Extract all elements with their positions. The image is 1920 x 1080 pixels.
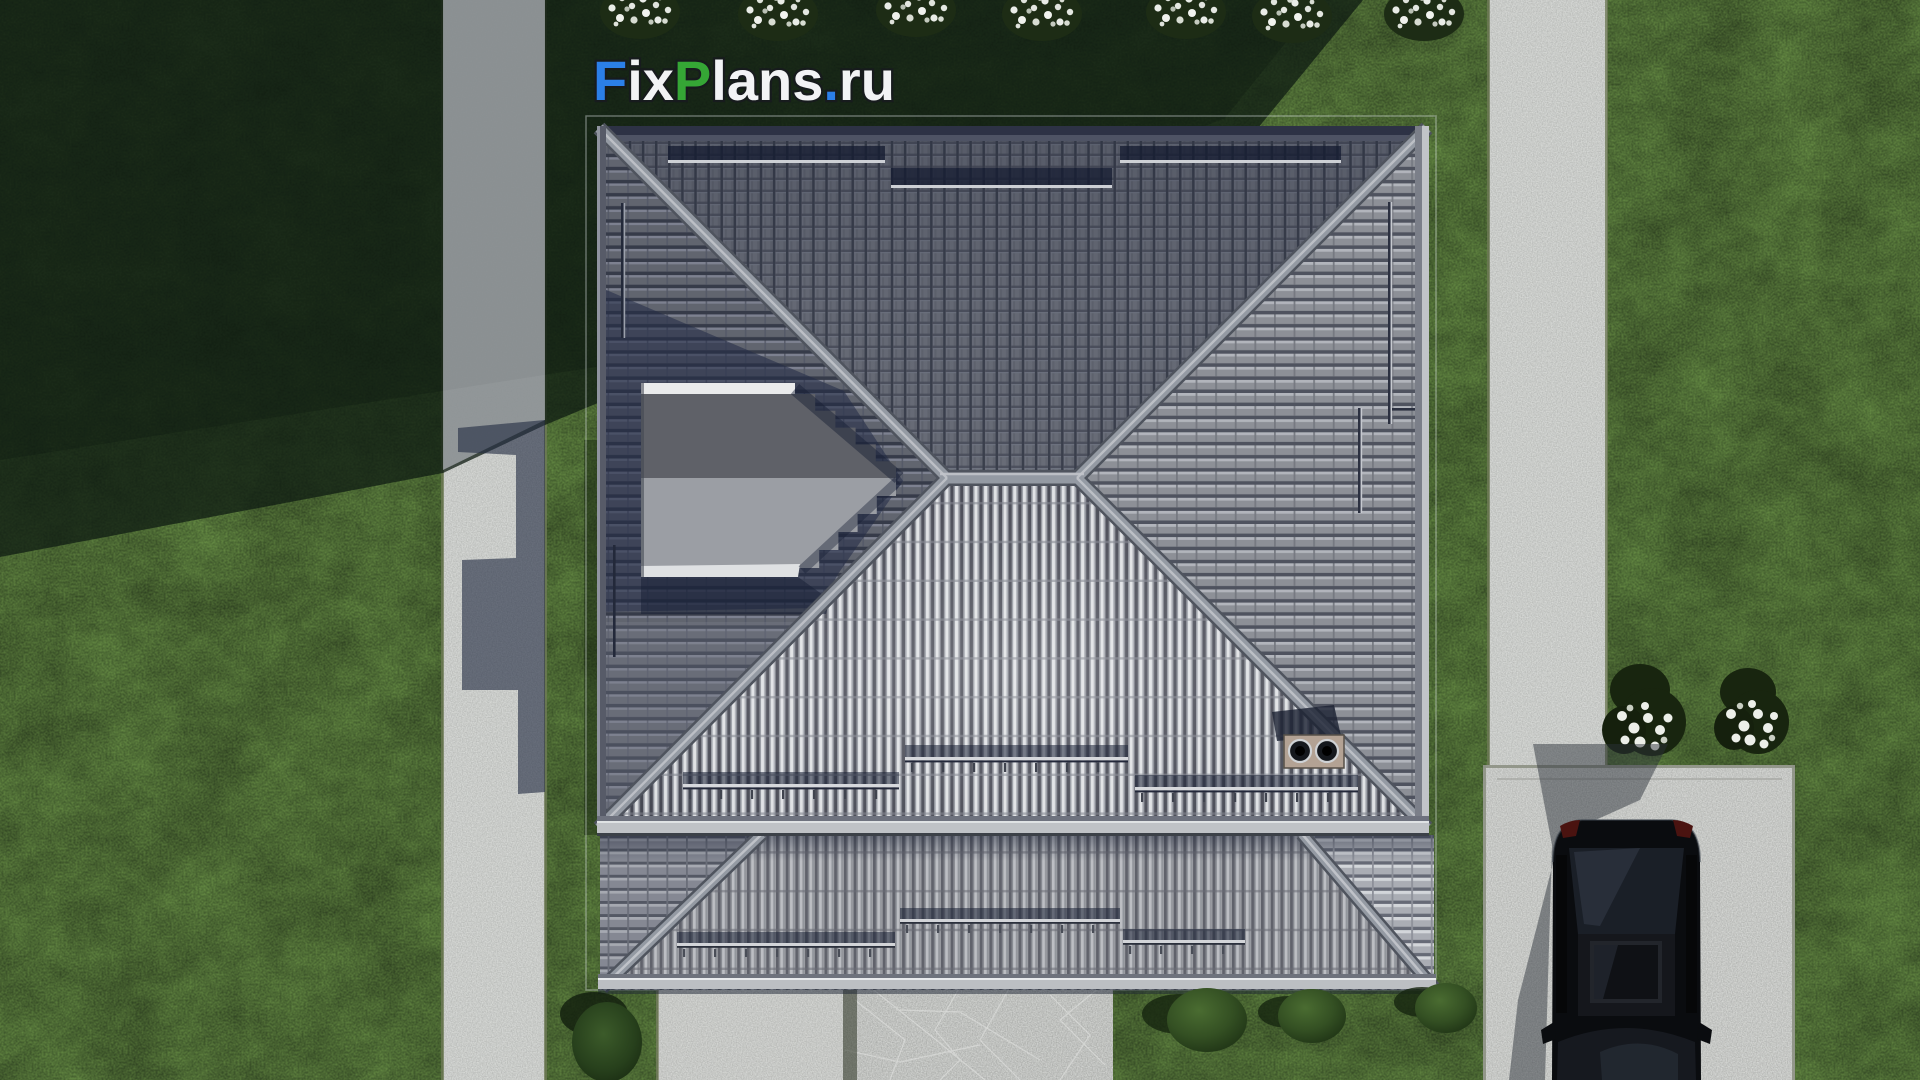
svg-text:FixPlans.ru: FixPlans.ru — [593, 49, 895, 112]
